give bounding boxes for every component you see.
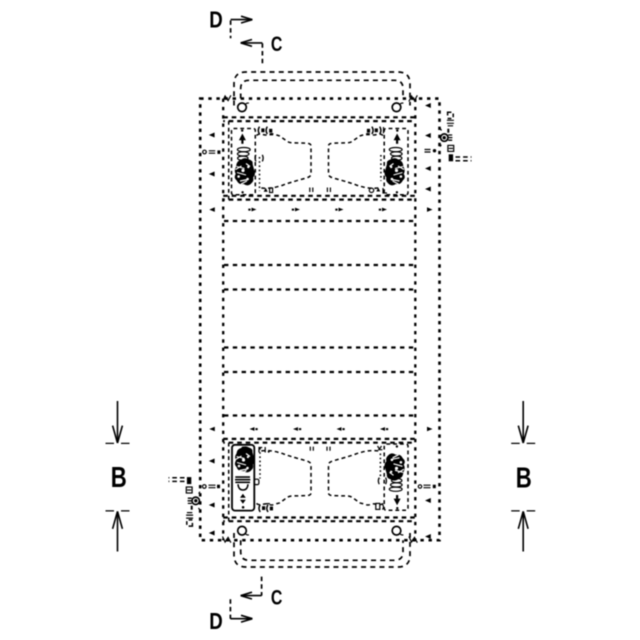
svg-text:C: C — [271, 32, 283, 56]
svg-text:B: B — [111, 462, 127, 494]
svg-text:B: B — [516, 463, 532, 495]
svg-text:C: C — [271, 585, 283, 609]
svg-text:D: D — [209, 608, 223, 634]
svg-text:D: D — [209, 7, 223, 33]
